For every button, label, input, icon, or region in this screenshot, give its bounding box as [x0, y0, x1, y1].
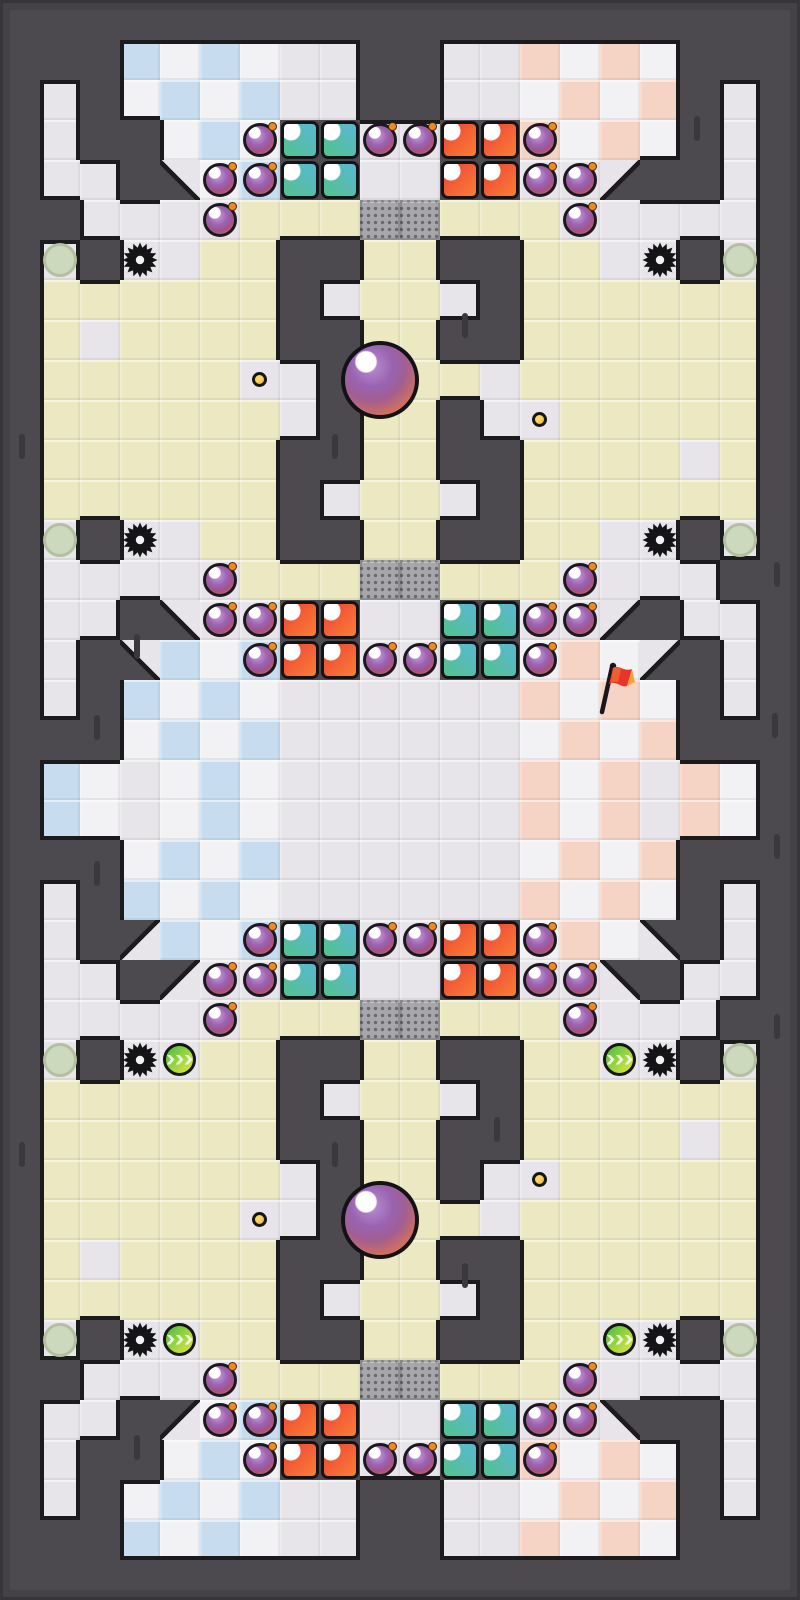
spawn-pad [43, 1043, 77, 1077]
bomb[interactable] [363, 643, 397, 677]
tile-crate[interactable] [400, 1360, 440, 1400]
bomb[interactable] [203, 1403, 237, 1437]
tile-yellow [560, 360, 600, 400]
tile-floor [680, 600, 720, 640]
chevron-right-icon [607, 1055, 615, 1065]
bomb[interactable] [243, 123, 277, 157]
block-red-cell[interactable] [281, 641, 319, 679]
tile-yellow [80, 1080, 120, 1120]
tile-crate[interactable] [400, 1000, 440, 1040]
tile-checker-pink [600, 1440, 640, 1480]
diagonal-wall-tile [160, 960, 200, 1000]
tile-yellow [40, 320, 80, 360]
tile-yellow [200, 1040, 240, 1080]
gold-coin[interactable] [532, 1172, 547, 1187]
chevron-right-icon [625, 1335, 633, 1345]
tile-yellow [640, 1240, 680, 1280]
tile-yellow [160, 280, 200, 320]
block-teal-cell[interactable] [281, 961, 319, 999]
giant-orb[interactable] [341, 341, 419, 419]
tile-yellow [560, 1200, 600, 1240]
bomb[interactable] [563, 1003, 597, 1037]
tile-floor [40, 960, 80, 1000]
tile-checker-blue [160, 680, 200, 720]
bomb-fuse-icon [428, 642, 437, 651]
bomb[interactable] [203, 1003, 237, 1037]
tile-crate[interactable] [360, 1000, 400, 1040]
bomb[interactable] [243, 643, 277, 677]
tile-floor [40, 680, 80, 720]
block-red-cell[interactable] [441, 121, 479, 159]
tile-yellow [240, 1280, 280, 1320]
tile-yellow [80, 1160, 120, 1200]
saw-gear-icon[interactable] [640, 1320, 680, 1360]
tile-yellow [720, 1160, 760, 1200]
tile-yellow [240, 440, 280, 480]
block-teal-cell[interactable] [321, 921, 359, 959]
tile-yellow [400, 1320, 440, 1360]
tile-checker-pink [640, 720, 680, 760]
block-red-cell[interactable] [481, 921, 519, 959]
checkpoint-flag[interactable] [588, 658, 640, 724]
tile-checker-pink [640, 1440, 680, 1480]
block-red-cell[interactable] [441, 921, 479, 959]
tile-checker-blue [200, 800, 240, 840]
tile-floor [680, 200, 720, 240]
tile-yellow [560, 1280, 600, 1320]
tile-checker-pink [600, 800, 640, 840]
tile-floor [600, 1360, 640, 1400]
tile-floor [720, 880, 760, 920]
tile-checker-blue [200, 640, 240, 680]
tile-floor [40, 1480, 80, 1520]
saw-gear-icon[interactable] [120, 1320, 160, 1360]
block-teal-cell[interactable] [481, 641, 519, 679]
saw-gear-icon[interactable] [640, 520, 680, 560]
block-teal-cell[interactable] [481, 601, 519, 639]
bomb-fuse-icon [228, 602, 237, 611]
bomb[interactable] [363, 923, 397, 957]
bomb[interactable] [363, 123, 397, 157]
bomb[interactable] [243, 603, 277, 637]
tile-floor [720, 680, 760, 720]
tile-yellow [400, 1120, 440, 1160]
tile-floor [120, 1000, 160, 1040]
boost-pad[interactable] [603, 1323, 636, 1356]
tile-checker-pink [520, 760, 560, 800]
bomb[interactable] [563, 1363, 597, 1397]
tile-floor [360, 800, 400, 840]
tile-checker-blue [200, 680, 240, 720]
wall-crack-dash [19, 434, 25, 459]
tile-yellow [360, 1280, 400, 1320]
tile-yellow [240, 1120, 280, 1160]
tile-checker-blue [240, 880, 280, 920]
bomb[interactable] [203, 1363, 237, 1397]
saw-gear-icon[interactable] [120, 520, 160, 560]
tile-floor [280, 400, 320, 440]
tile-checker-pink [600, 880, 640, 920]
tile-yellow [440, 1360, 480, 1400]
bomb[interactable] [403, 123, 437, 157]
block-tile [280, 600, 320, 640]
tile-yellow [160, 1280, 200, 1320]
tile-floor [280, 1480, 320, 1520]
block-tile [320, 1440, 360, 1480]
tile-floor [280, 800, 320, 840]
tile-floor [80, 1400, 120, 1440]
bomb-fuse-icon [268, 962, 277, 971]
chevron-right-icon [616, 1335, 624, 1345]
tile-floor [280, 720, 320, 760]
tile-checker-blue [200, 1440, 240, 1480]
diagonal-wall-tile [600, 600, 640, 640]
tile-floor [320, 1520, 360, 1560]
block-tile [480, 960, 520, 1000]
tile-floor [160, 560, 200, 600]
bomb[interactable] [563, 1403, 597, 1437]
tile-crate[interactable] [360, 560, 400, 600]
bomb[interactable] [523, 1403, 557, 1437]
tile-yellow [720, 440, 760, 480]
tile-checker-blue [80, 800, 120, 840]
tile-checker-blue [120, 40, 160, 80]
tile-yellow [200, 1080, 240, 1120]
tile-yellow [520, 560, 560, 600]
chevron-right-icon [185, 1055, 193, 1065]
tile-floor [280, 680, 320, 720]
tile-checker-pink [640, 1520, 680, 1560]
tile-checker-pink [560, 120, 600, 160]
bomb-fuse-icon [228, 1002, 237, 1011]
block-teal-cell[interactable] [441, 601, 479, 639]
tile-checker-pink [520, 840, 560, 880]
tile-yellow [240, 520, 280, 560]
block-tile [320, 1400, 360, 1440]
bomb-fuse-icon [268, 1402, 277, 1411]
tile-floor [80, 1240, 120, 1280]
bomb[interactable] [403, 643, 437, 677]
spawn-pad [43, 243, 77, 277]
bomb-fuse-icon [268, 162, 277, 171]
bomb[interactable] [363, 1443, 397, 1477]
tile-yellow [520, 1240, 560, 1280]
gold-coin[interactable] [252, 372, 267, 387]
tile-checker-blue [200, 880, 240, 920]
boost-pad[interactable] [163, 1043, 196, 1076]
tile-floor [400, 680, 440, 720]
tile-floor [80, 320, 120, 360]
tile-yellow [80, 280, 120, 320]
tile-floor [720, 640, 760, 680]
tile-floor [720, 160, 760, 200]
tile-floor [480, 760, 520, 800]
bomb[interactable] [523, 923, 557, 957]
tile-floor [600, 560, 640, 600]
tile-floor [280, 40, 320, 80]
tile-checker-blue [240, 840, 280, 880]
game-board[interactable] [0, 0, 800, 1600]
bomb[interactable] [243, 963, 277, 997]
block-tile [280, 960, 320, 1000]
tile-floor [480, 680, 520, 720]
tile-floor [40, 1400, 80, 1440]
block-teal-cell[interactable] [281, 121, 319, 159]
tile-floor [680, 1000, 720, 1040]
bomb-fuse-icon [228, 1402, 237, 1411]
tile-yellow [400, 440, 440, 480]
tile-floor [480, 1480, 520, 1520]
tile-yellow [480, 560, 520, 600]
diagonal-wall-tile [120, 920, 160, 960]
tile-floor [360, 960, 400, 1000]
tile-yellow [40, 1080, 80, 1120]
tile-floor [680, 560, 720, 600]
bomb-fuse-icon [228, 1362, 237, 1371]
tile-checker-pink [600, 80, 640, 120]
tile-floor [80, 600, 120, 640]
tile-checker-blue [200, 760, 240, 800]
tile-crate[interactable] [400, 560, 440, 600]
tile-crate[interactable] [360, 1360, 400, 1400]
tile-yellow [560, 440, 600, 480]
bomb-fuse-icon [428, 1442, 437, 1451]
gold-coin[interactable] [252, 1212, 267, 1227]
bomb[interactable] [523, 163, 557, 197]
bomb-fuse-icon [388, 122, 397, 131]
block-tile [280, 160, 320, 200]
tile-checker-blue [160, 1520, 200, 1560]
tile-yellow [600, 400, 640, 440]
tile-checker-pink [600, 760, 640, 800]
tile-checker-blue [160, 880, 200, 920]
bomb[interactable] [243, 923, 277, 957]
bomb[interactable] [563, 563, 597, 597]
tile-yellow [200, 400, 240, 440]
bomb[interactable] [243, 163, 277, 197]
chevron-right-icon [607, 1335, 615, 1345]
bomb[interactable] [563, 963, 597, 997]
bomb[interactable] [563, 203, 597, 237]
tile-checker-blue [120, 720, 160, 760]
spawn-pad [723, 1323, 757, 1357]
bomb[interactable] [403, 1443, 437, 1477]
block-red-cell[interactable] [321, 1441, 359, 1479]
tile-floor [440, 720, 480, 760]
tile-yellow [520, 1200, 560, 1240]
tile-yellow [440, 1200, 480, 1240]
tile-floor [720, 1360, 760, 1400]
tile-checker-blue [160, 720, 200, 760]
bomb[interactable] [523, 963, 557, 997]
bomb[interactable] [523, 603, 557, 637]
tile-floor [320, 80, 360, 120]
block-red-cell[interactable] [321, 1401, 359, 1439]
block-teal-cell[interactable] [281, 921, 319, 959]
tile-floor [80, 200, 120, 240]
tile-checker-blue [160, 760, 200, 800]
bomb[interactable] [203, 563, 237, 597]
block-red-cell[interactable] [481, 121, 519, 159]
giant-orb[interactable] [341, 1181, 419, 1259]
tile-floor [720, 1400, 760, 1440]
block-red-cell[interactable] [321, 641, 359, 679]
tile-floor [720, 1480, 760, 1520]
tile-yellow [160, 1080, 200, 1120]
spawn-pad [43, 523, 77, 557]
block-tile [480, 1400, 520, 1440]
tile-yellow [600, 1280, 640, 1320]
tile-checker-pink [680, 760, 720, 800]
bomb[interactable] [203, 203, 237, 237]
block-red-cell[interactable] [481, 161, 519, 199]
tile-floor [160, 240, 200, 280]
block-teal-cell[interactable] [321, 961, 359, 999]
tile-yellow [200, 240, 240, 280]
tile-yellow [80, 400, 120, 440]
block-teal-cell[interactable] [481, 1401, 519, 1439]
block-teal-cell[interactable] [281, 161, 319, 199]
block-tile [280, 1400, 320, 1440]
block-teal-cell[interactable] [481, 1441, 519, 1479]
tile-floor [440, 1280, 480, 1320]
block-red-cell[interactable] [281, 1401, 319, 1439]
tile-yellow [40, 400, 80, 440]
block-red-cell[interactable] [321, 601, 359, 639]
tile-yellow [680, 320, 720, 360]
tile-floor [680, 1120, 720, 1160]
tile-yellow [40, 1200, 80, 1240]
block-teal-cell[interactable] [441, 641, 479, 679]
tile-yellow [640, 400, 680, 440]
bomb[interactable] [203, 603, 237, 637]
tile-yellow [240, 200, 280, 240]
tile-yellow [520, 1040, 560, 1080]
bomb[interactable] [203, 163, 237, 197]
tile-yellow [520, 1120, 560, 1160]
block-red-cell[interactable] [281, 601, 319, 639]
bomb[interactable] [403, 923, 437, 957]
tile-yellow [240, 240, 280, 280]
diagonal-wall-tile [600, 160, 640, 200]
tile-yellow [240, 1360, 280, 1400]
boost-pad[interactable] [163, 1323, 196, 1356]
bomb[interactable] [243, 1403, 277, 1437]
saw-gear-icon[interactable] [640, 240, 680, 280]
saw-gear-icon[interactable] [120, 1040, 160, 1080]
block-teal-cell[interactable] [321, 121, 359, 159]
diagonal-wall-tile [600, 960, 640, 1000]
tile-floor [360, 880, 400, 920]
wall-crack-dash [134, 634, 140, 659]
tile-floor [320, 680, 360, 720]
tile-floor [80, 160, 120, 200]
saw-gear-icon[interactable] [120, 240, 160, 280]
bomb[interactable] [523, 1443, 557, 1477]
bomb[interactable] [523, 643, 557, 677]
tile-checker-pink [560, 720, 600, 760]
tile-yellow [200, 1120, 240, 1160]
block-red-cell[interactable] [481, 961, 519, 999]
bomb[interactable] [563, 163, 597, 197]
block-teal-cell[interactable] [441, 1441, 479, 1479]
tile-yellow [520, 480, 560, 520]
tile-checker-pink [560, 840, 600, 880]
bomb[interactable] [203, 963, 237, 997]
tile-checker-blue [160, 840, 200, 880]
block-red-cell[interactable] [441, 961, 479, 999]
tile-yellow [680, 480, 720, 520]
tile-floor [320, 880, 360, 920]
tile-floor [480, 1160, 520, 1200]
tile-floor [640, 800, 680, 840]
tile-yellow [320, 560, 360, 600]
tile-checker-blue [200, 1480, 240, 1520]
tile-crate[interactable] [360, 200, 400, 240]
block-teal-cell[interactable] [321, 161, 359, 199]
tile-yellow [400, 1280, 440, 1320]
tile-yellow [680, 360, 720, 400]
block-tile [480, 600, 520, 640]
tile-floor [120, 800, 160, 840]
bomb-fuse-icon [228, 162, 237, 171]
boost-pad[interactable] [603, 1043, 636, 1076]
tile-yellow [560, 240, 600, 280]
tile-floor [600, 200, 640, 240]
tile-floor [680, 960, 720, 1000]
block-red-cell[interactable] [281, 1441, 319, 1479]
bomb-fuse-icon [548, 642, 557, 651]
tile-floor [320, 280, 360, 320]
tile-checker-blue [240, 800, 280, 840]
tile-checker-pink [560, 40, 600, 80]
tile-yellow [120, 1120, 160, 1160]
bomb-fuse-icon [228, 962, 237, 971]
chevron-right-icon [167, 1055, 175, 1065]
tile-floor [40, 160, 80, 200]
gold-coin[interactable] [532, 412, 547, 427]
block-red-cell[interactable] [441, 161, 479, 199]
tile-yellow [200, 1200, 240, 1240]
saw-gear-icon[interactable] [640, 1040, 680, 1080]
tile-floor [440, 480, 480, 520]
bomb-fuse-icon [268, 1442, 277, 1451]
tile-yellow [600, 1240, 640, 1280]
tile-yellow [600, 280, 640, 320]
chevron-right-icon [167, 1335, 175, 1345]
tile-yellow [520, 240, 560, 280]
tile-floor [480, 880, 520, 920]
tile-checker-blue [160, 640, 200, 680]
tile-yellow [280, 560, 320, 600]
tile-checker-pink [640, 1480, 680, 1520]
chevron-right-icon [616, 1055, 624, 1065]
bomb[interactable] [243, 1443, 277, 1477]
block-teal-cell[interactable] [441, 1401, 479, 1439]
tile-floor [320, 800, 360, 840]
tile-floor [440, 800, 480, 840]
tile-checker-blue [200, 840, 240, 880]
tile-checker-blue [120, 680, 160, 720]
tile-yellow [200, 1280, 240, 1320]
tile-floor [80, 960, 120, 1000]
tile-floor [320, 480, 360, 520]
bomb[interactable] [563, 603, 597, 637]
bomb[interactable] [523, 123, 557, 157]
tile-crate[interactable] [400, 200, 440, 240]
tile-floor [640, 1000, 680, 1040]
tile-yellow [240, 1320, 280, 1360]
